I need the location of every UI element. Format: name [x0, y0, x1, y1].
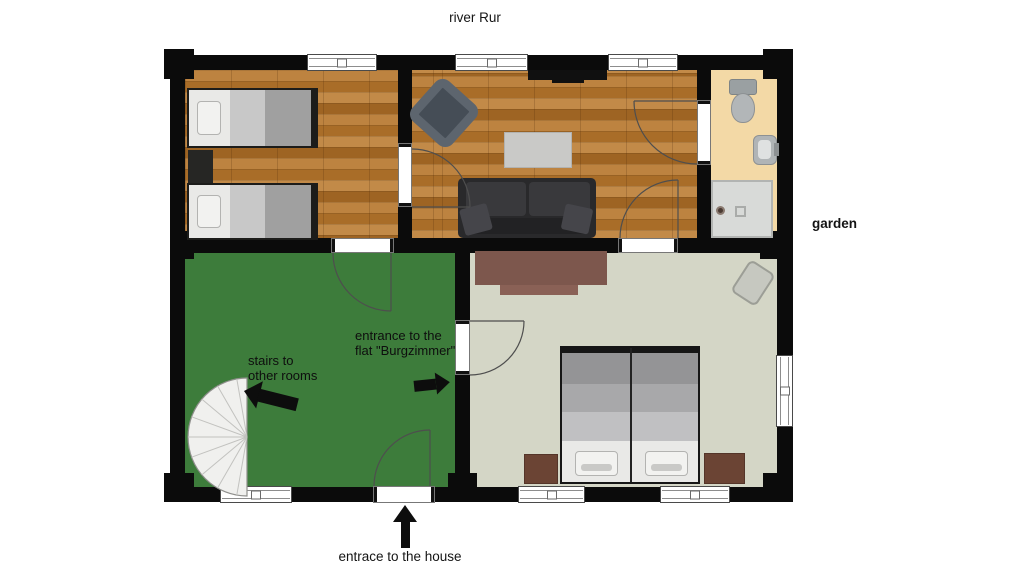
flat-entrance-line1: entrance to the — [355, 328, 455, 343]
double-bed — [560, 346, 700, 484]
corner-post — [763, 473, 793, 502]
shower-fitting — [735, 206, 746, 217]
single-bed-2 — [187, 183, 318, 240]
coffee-table — [504, 132, 572, 168]
corner-post — [164, 49, 194, 79]
single-bed-1 — [187, 88, 318, 148]
door-hall-burg — [455, 320, 470, 375]
junction-post — [448, 473, 477, 502]
arrow-head — [393, 505, 417, 522]
corner-post — [763, 49, 793, 79]
window-burg-right — [776, 355, 793, 427]
tap — [774, 143, 779, 156]
corner-post — [164, 473, 194, 502]
wardrobe — [475, 251, 607, 285]
window-burg-bottom-1 — [518, 486, 585, 503]
door-house-entrance — [373, 486, 435, 503]
garden-label: garden — [812, 216, 857, 232]
nightstand — [704, 453, 745, 484]
nightstand — [524, 454, 558, 484]
toilet — [731, 93, 755, 123]
window-burg-bottom-2 — [660, 486, 730, 503]
door-bedroom-living — [398, 143, 412, 207]
arrow-shaft — [414, 379, 437, 392]
pillow-fold — [581, 464, 612, 471]
sink-basin — [758, 140, 771, 159]
flat-entrance-note: entrance to the flat "Burgzimmer" — [355, 328, 455, 358]
window-hall-bottom — [220, 486, 292, 503]
stairs-note: stairs to other rooms — [248, 353, 317, 383]
window-living-top-2 — [608, 54, 678, 71]
nightstand — [188, 150, 213, 183]
river-label: river Rur — [400, 10, 550, 26]
wardrobe-front — [500, 285, 578, 295]
wall-right — [777, 55, 793, 502]
window-living-top-1 — [455, 54, 528, 71]
pillow — [645, 451, 688, 476]
flat-entrance-line2: flat "Burgzimmer" — [355, 343, 455, 358]
tv-stand — [552, 80, 584, 83]
arrow-shaft — [257, 389, 299, 411]
door-bedroom-hall — [331, 238, 394, 253]
arrow-right-icon — [413, 371, 451, 398]
sofa — [458, 178, 596, 238]
pillow — [197, 101, 221, 135]
floor-plan-page: { "annotations": { "river": "river Rur",… — [0, 0, 1024, 576]
pillow — [575, 451, 618, 476]
door-living-bath — [697, 100, 711, 165]
shower — [711, 180, 773, 238]
pillow — [197, 195, 221, 228]
wall-left — [170, 55, 185, 502]
sofa-pillow — [561, 203, 594, 234]
window-bedroom-top — [307, 54, 377, 71]
shower-drain — [716, 206, 725, 215]
arrow-up-icon — [393, 505, 418, 548]
house-entrance-label: entrace to the house — [310, 549, 490, 565]
stairs-note-line1: stairs to — [248, 353, 317, 368]
floor-plan: stairs to other rooms entrance to the fl… — [0, 0, 1024, 576]
room-hallway-floor — [185, 253, 455, 487]
tv — [528, 70, 607, 80]
bed-split-line — [630, 348, 632, 482]
pillow-fold — [651, 464, 682, 471]
arrow-head — [435, 371, 451, 394]
door-living-burg — [618, 238, 678, 253]
arrow-shaft — [401, 521, 410, 548]
